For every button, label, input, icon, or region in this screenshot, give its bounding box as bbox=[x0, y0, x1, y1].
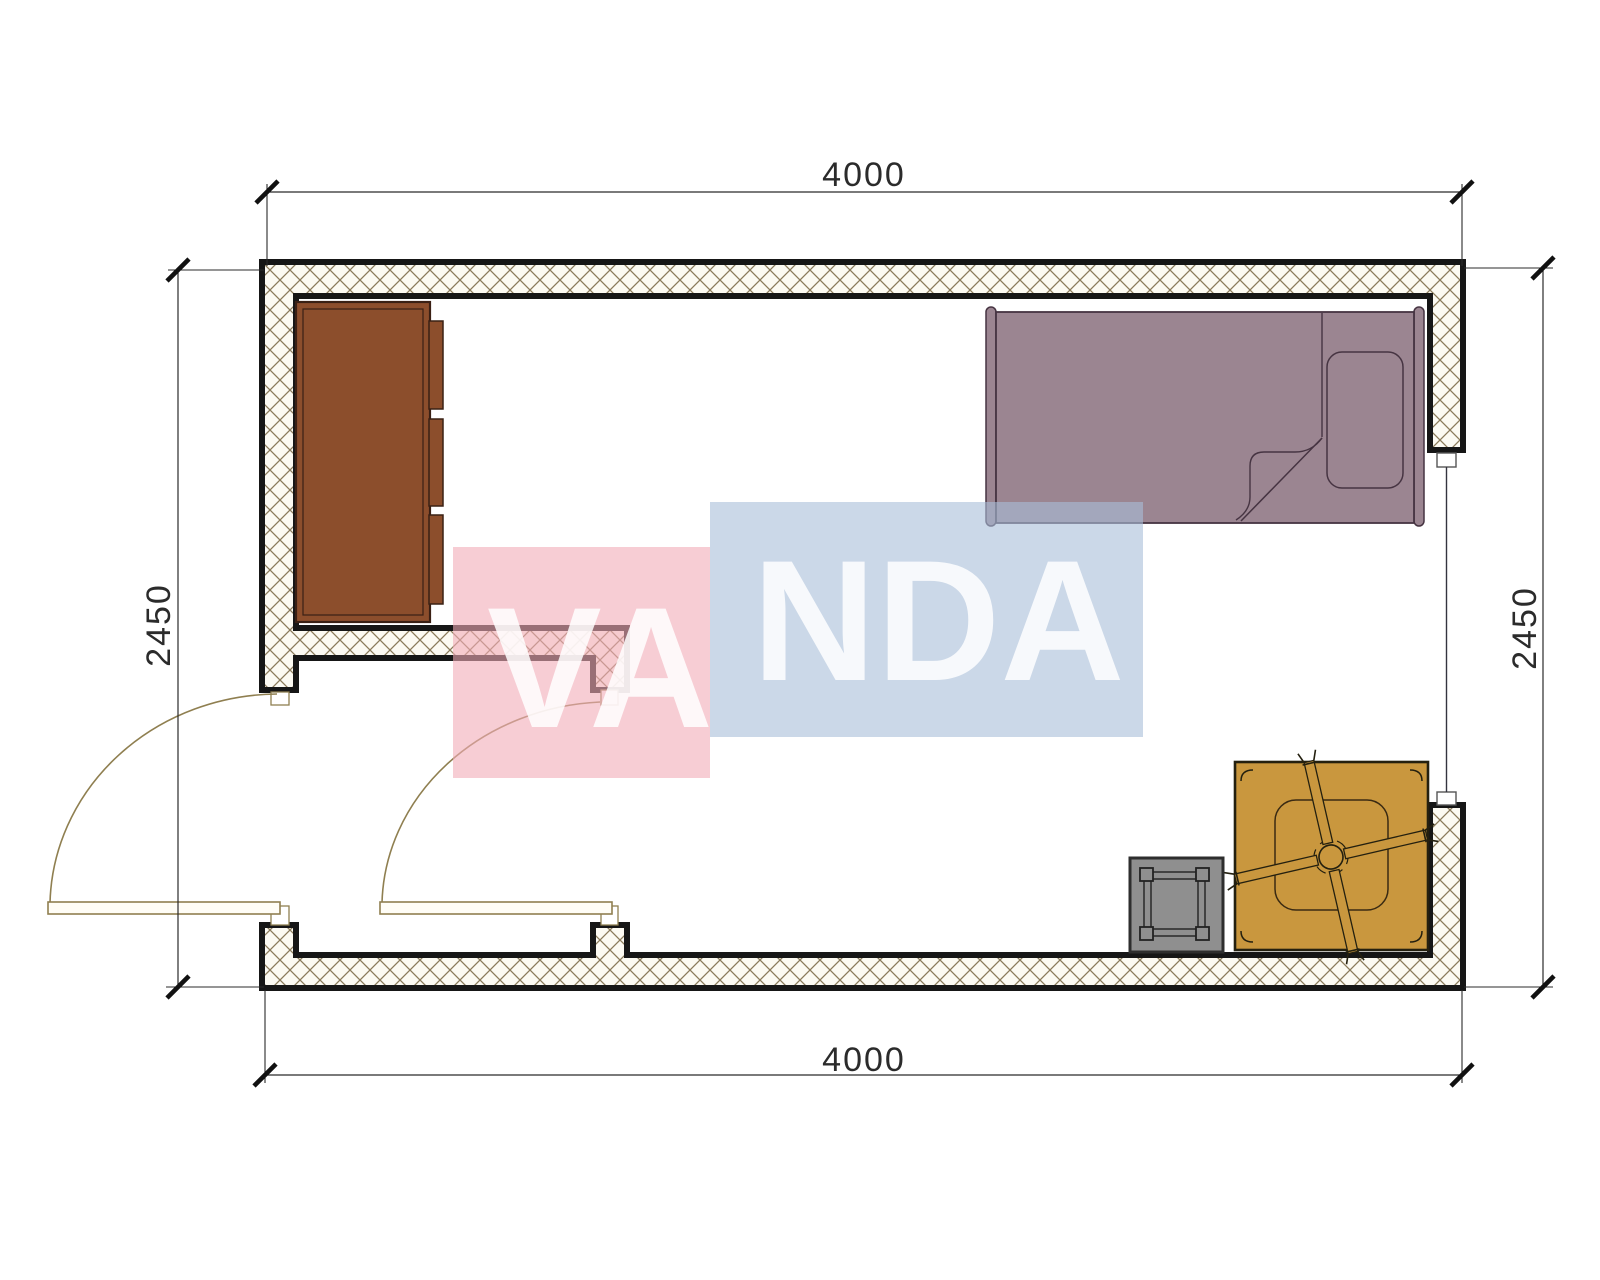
wardrobe-door bbox=[429, 419, 443, 506]
wardrobe-door bbox=[429, 321, 443, 409]
dim-label-top: 4000 bbox=[822, 156, 906, 194]
single-bed bbox=[986, 307, 1424, 526]
table-with-ceiling-fan bbox=[1201, 727, 1460, 986]
left-swing-door bbox=[48, 692, 289, 925]
bed-body bbox=[996, 312, 1414, 523]
dim-label-left: 2450 bbox=[140, 583, 178, 667]
floor-plan-canvas: 4000 4000 2450 2450 VA NDA bbox=[0, 0, 1600, 1280]
window-jamb-bottom bbox=[1437, 792, 1456, 805]
floor-plan-drawing: 4000 4000 2450 2450 VA NDA bbox=[0, 0, 1600, 1280]
dim-label-bottom: 4000 bbox=[822, 1041, 906, 1079]
stool bbox=[1130, 858, 1223, 952]
window-jamb-top bbox=[1437, 453, 1456, 467]
door-leaf bbox=[380, 902, 612, 914]
wardrobe-body bbox=[296, 302, 430, 622]
door-swing-arc bbox=[50, 694, 277, 903]
wardrobe bbox=[296, 302, 443, 622]
watermark-text-nda: NDA bbox=[752, 525, 1125, 717]
door-leaf bbox=[48, 902, 280, 914]
window bbox=[1437, 453, 1456, 805]
bed-footboard bbox=[986, 307, 996, 526]
bed-headboard bbox=[1414, 307, 1424, 526]
wardrobe-door bbox=[429, 515, 443, 604]
dim-label-right: 2450 bbox=[1506, 586, 1544, 670]
watermark: VA NDA bbox=[453, 502, 1143, 778]
watermark-text-va: VA bbox=[487, 572, 713, 764]
